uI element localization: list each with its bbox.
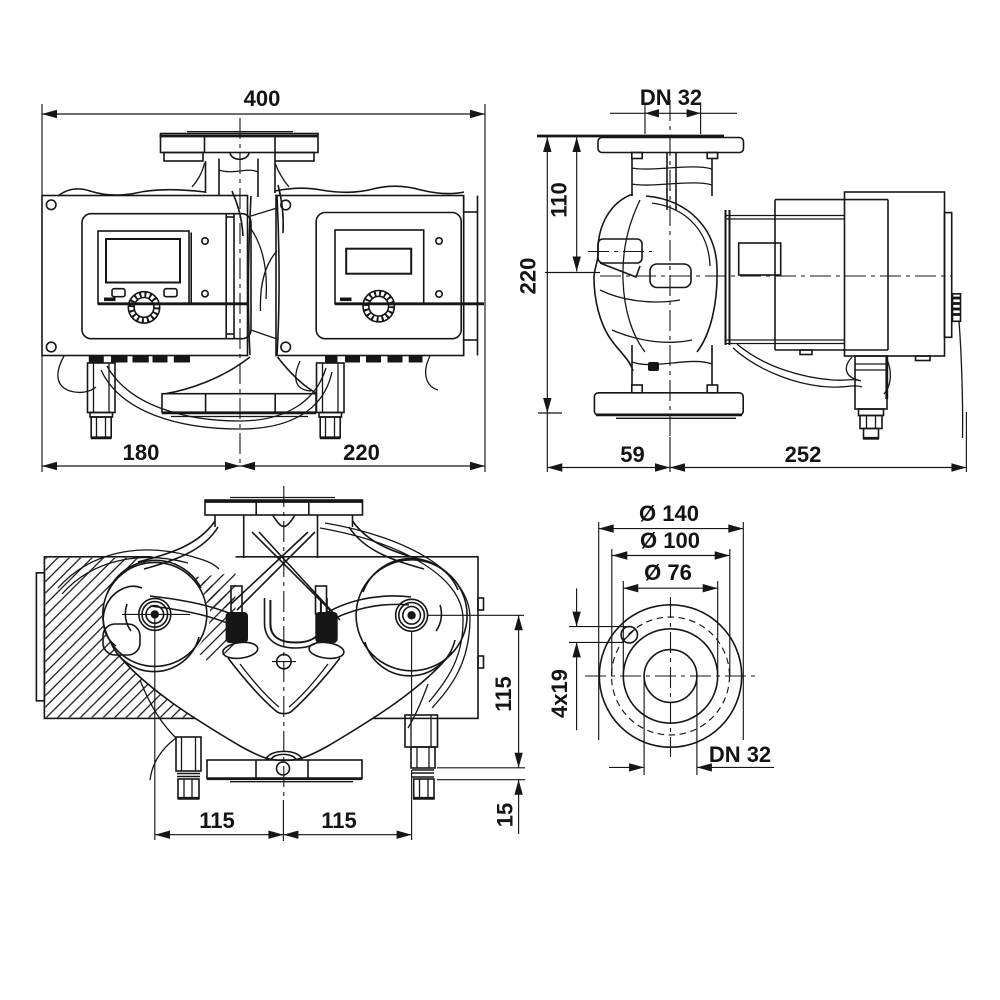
- svg-text:400: 400: [244, 86, 281, 111]
- svg-text:15: 15: [493, 803, 518, 827]
- svg-text:115: 115: [321, 808, 357, 833]
- svg-text:110: 110: [547, 182, 572, 218]
- svg-text:115: 115: [199, 808, 235, 833]
- svg-text:220: 220: [516, 258, 541, 295]
- svg-text:DN 32: DN 32: [709, 742, 771, 767]
- svg-text:Ø 76: Ø 76: [644, 560, 692, 585]
- svg-text:DN 32: DN 32: [640, 85, 702, 110]
- svg-text:220: 220: [343, 440, 380, 465]
- svg-text:4x19: 4x19: [547, 669, 572, 718]
- svg-text:115: 115: [491, 676, 516, 712]
- svg-text:180: 180: [123, 440, 160, 465]
- svg-text:252: 252: [785, 442, 822, 467]
- svg-text:Ø 140: Ø 140: [639, 501, 699, 526]
- svg-text:Ø 100: Ø 100: [640, 528, 700, 553]
- svg-text:59: 59: [620, 442, 644, 467]
